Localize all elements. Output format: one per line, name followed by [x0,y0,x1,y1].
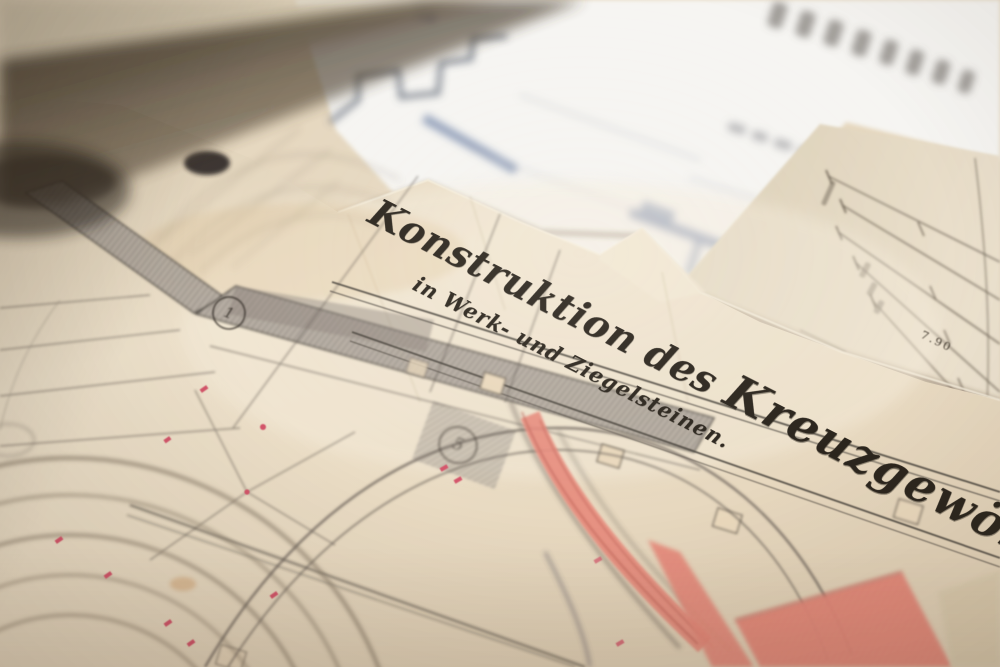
paper-stain [170,577,196,591]
ink-blot [184,151,230,175]
drawings-photo-svg [0,0,1000,667]
photo-architectural-drawings: Konstruktion desKreuzgewölbes in Werk- u… [0,0,1000,667]
